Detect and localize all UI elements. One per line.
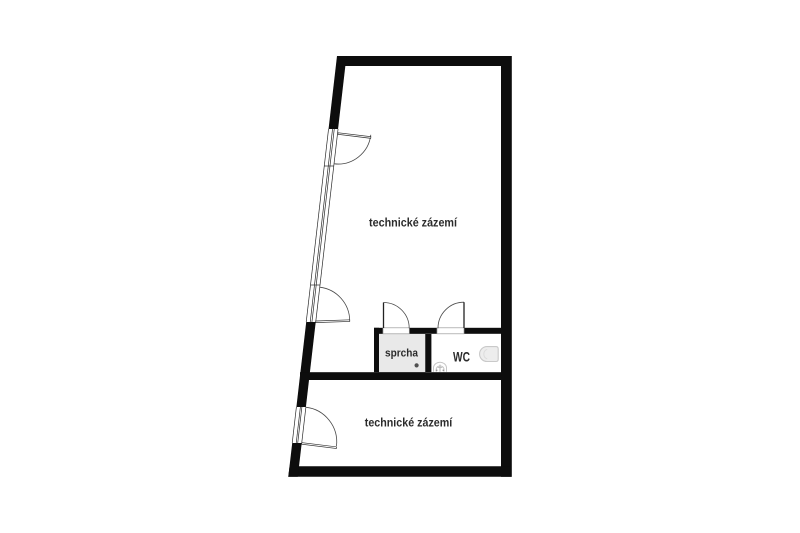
svg-text:sprcha: sprcha (385, 347, 419, 359)
svg-text:technické zázemí: technické zázemí (365, 416, 453, 430)
svg-text:technické zázemí: technické zázemí (369, 216, 458, 230)
svg-text:WC: WC (453, 349, 470, 365)
